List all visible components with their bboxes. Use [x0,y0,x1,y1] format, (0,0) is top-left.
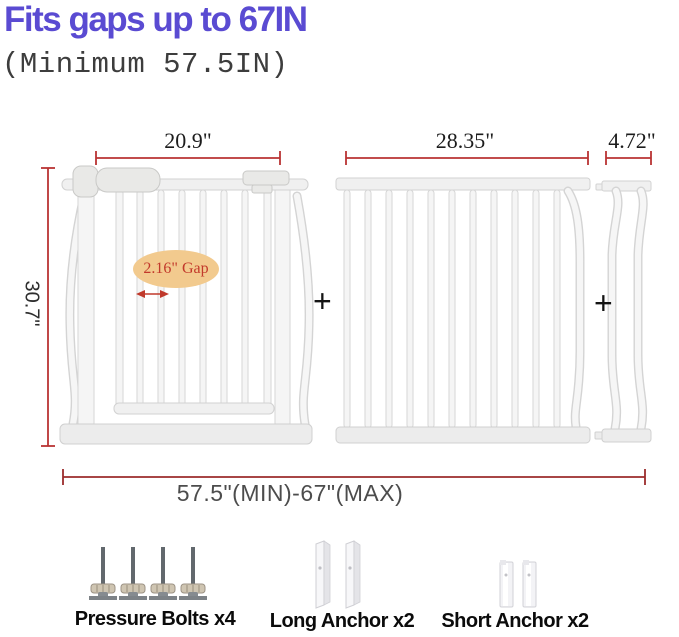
pressure-bolt-icon [119,547,147,600]
gate-diagram-graphic [0,0,679,637]
gate-panel [60,166,312,444]
short-anchor-icon [523,560,536,607]
long-anchor-icon [346,541,360,608]
plus-sign: + [313,285,332,317]
gap-callout-label: 2.16" Gap [143,260,208,278]
dimension-label-height: 30.7" [20,274,43,334]
gap-callout: 2.16" Gap [133,250,219,288]
pressure-bolts-label: Pressure Bolts x4 [60,608,250,631]
plus-sign: + [594,287,613,319]
short-anchor-icon [500,560,513,607]
pressure-bolt-icon [89,547,117,600]
dimension-label-small-extension-width: 4.72" [592,128,672,154]
long-anchor-icon [316,541,330,608]
short-anchors-icon [500,560,536,607]
dimension-label-gate-width: 20.9" [140,128,236,154]
extension-panel [336,178,590,443]
long-anchors-icon [316,541,360,608]
dimension-label-extension-width: 28.35" [413,128,517,154]
pressure-bolt-icon [149,547,177,600]
product-diagram: Fits gaps up to 67IN (Minimum 57.5IN) [0,0,679,637]
pressure-bolts-icon [89,547,207,600]
dimension-label-total-range: 57.5"(MIN)-67"(MAX) [140,480,440,507]
long-anchor-label: Long Anchor x2 [252,610,432,633]
short-anchor-label: Short Anchor x2 [425,610,605,633]
pressure-bolt-icon [179,547,207,600]
